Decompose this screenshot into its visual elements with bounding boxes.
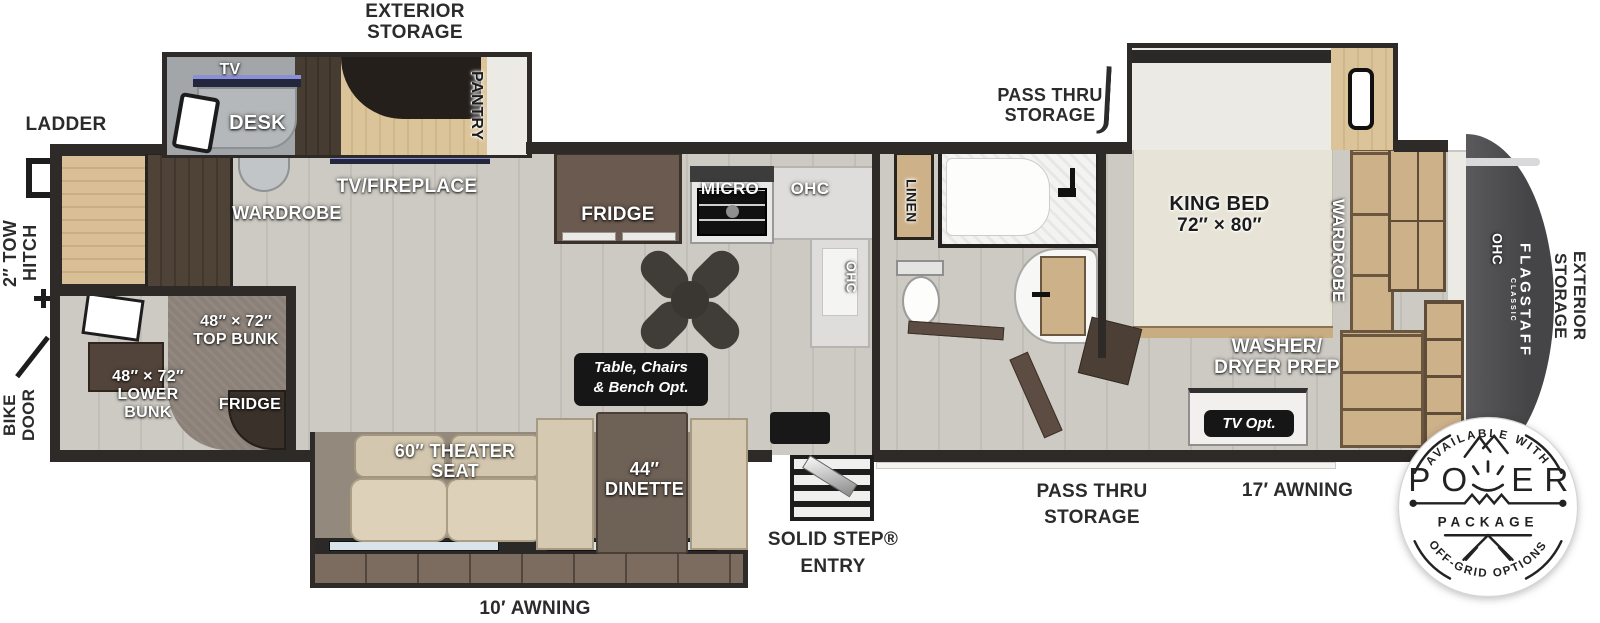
- bedroom-wardrobe-label: WARDROBE: [1329, 183, 1348, 318]
- desk-label: DESK: [210, 112, 305, 134]
- dinette-label: 44″DINETTE: [592, 459, 697, 499]
- awning-10-label: 10′ AWNING: [455, 598, 615, 619]
- pass-thru-top-label: PASS THRUSTORAGE: [975, 85, 1125, 125]
- ohc-side-label: OHC: [843, 248, 859, 306]
- bike-door-label: BIKEDOOR: [0, 376, 42, 454]
- slide-window-left: [329, 541, 499, 551]
- toilet-bowl: [902, 276, 940, 326]
- bath-wall-right: [1098, 150, 1106, 358]
- exterior-storage-rear-label: EXTERIORSTORAGE: [1551, 232, 1589, 360]
- wall-bottom-mid: [748, 450, 772, 462]
- floorplan-canvas: EXTERIORSTORAGE LADDER 2″ TOWHITCH BIKED…: [0, 0, 1600, 623]
- exterior-storage-top-label: EXTERIORSTORAGE: [350, 1, 480, 44]
- king-slide-window: [1348, 68, 1374, 130]
- svg-text:PACKAGE: PACKAGE: [1438, 515, 1539, 530]
- vanity-faucet: [1032, 292, 1050, 297]
- entry-steps: [790, 455, 874, 521]
- bunk-window: [81, 292, 144, 342]
- shower-pan: [946, 158, 1050, 236]
- bath-wall-left: [872, 150, 880, 455]
- theater-seat-label: 60″ THEATERSEAT: [365, 441, 545, 481]
- exterior-storage-cabinet: [295, 57, 341, 155]
- tv-unit: [193, 79, 301, 87]
- pass-thru-bottom-label: PASS THRUSTORAGE: [1012, 479, 1172, 530]
- micro-label: MICRO: [690, 179, 770, 198]
- kitchen-counter: [770, 166, 880, 240]
- lower-bunk-label: 48″ × 72″LOWERBUNK: [92, 368, 204, 422]
- front-wardrobe-cabinet: [145, 152, 233, 290]
- awning-rail: [876, 462, 1336, 469]
- tv-opt-note: TV Opt.: [1204, 410, 1294, 437]
- wall-top-mid: [526, 142, 1132, 154]
- theater-cushion-right: [446, 478, 544, 542]
- ladder-label: LADDER: [14, 114, 118, 135]
- pantry-label: PANTRY: [467, 58, 485, 153]
- dinette-bench-right: [690, 418, 748, 550]
- king-bed-label: KING BED72″ × 80″: [1142, 193, 1297, 237]
- wall-top-left: [52, 144, 166, 154]
- dinette-bench-left: [536, 418, 594, 550]
- power-package-badge: AVAILABLE WITH PO ER PACKAGE OFF-GRID OP…: [1396, 415, 1580, 599]
- svg-text:ER: ER: [1511, 462, 1579, 499]
- kitchen-fridge-door1: [562, 232, 616, 241]
- tow-hitch-label: 2″ TOWHITCH: [0, 198, 44, 308]
- solid-step-label: SOLID STEP®ENTRY: [753, 527, 913, 580]
- top-bunk-label: 48″ × 72″TOP BUNK: [176, 313, 296, 349]
- rear-upper-cabinets: [1388, 148, 1446, 292]
- tv-label: TV: [200, 61, 260, 79]
- tv-fireplace-label: TV/FIREPLACE: [322, 176, 492, 197]
- hitch-coupler: [26, 158, 52, 198]
- bunk-fridge-label: FRIDGE: [206, 396, 294, 414]
- wall-bottom-right: [874, 450, 1448, 462]
- bunk-wall-h: [56, 286, 296, 296]
- svg-text:PO: PO: [1408, 462, 1478, 499]
- brand-logo: FLAGSTAFFCLASSIC: [1508, 228, 1533, 373]
- rear-ohc-label: OHC: [1489, 222, 1505, 277]
- ohc-top-label: OHC: [782, 179, 838, 198]
- showerhead-arm: [1070, 168, 1075, 192]
- wall-left: [50, 144, 60, 460]
- range-knob: [726, 205, 739, 218]
- table-option-note: Table, Chairs& Bench Opt.: [574, 353, 708, 406]
- theater-cushion-left: [350, 478, 448, 542]
- wall-bottom-left: [50, 450, 312, 462]
- washer-dryer-label: WASHER/DRYER PREP: [1192, 336, 1362, 379]
- bike-door-swing: [15, 336, 50, 378]
- awning-17-label: 17′ AWNING: [1215, 480, 1380, 501]
- outdoor-griddle: [770, 412, 830, 444]
- linen-label: LINEN: [903, 165, 919, 237]
- kitchen-fridge-label: FRIDGE: [558, 204, 678, 225]
- wall-top-right: [1394, 140, 1448, 152]
- front-wardrobe-label: WARDROBE: [222, 203, 352, 223]
- slide-skirt: [315, 554, 743, 583]
- kitchen-fridge: [554, 152, 682, 244]
- toilet-tank: [896, 260, 944, 276]
